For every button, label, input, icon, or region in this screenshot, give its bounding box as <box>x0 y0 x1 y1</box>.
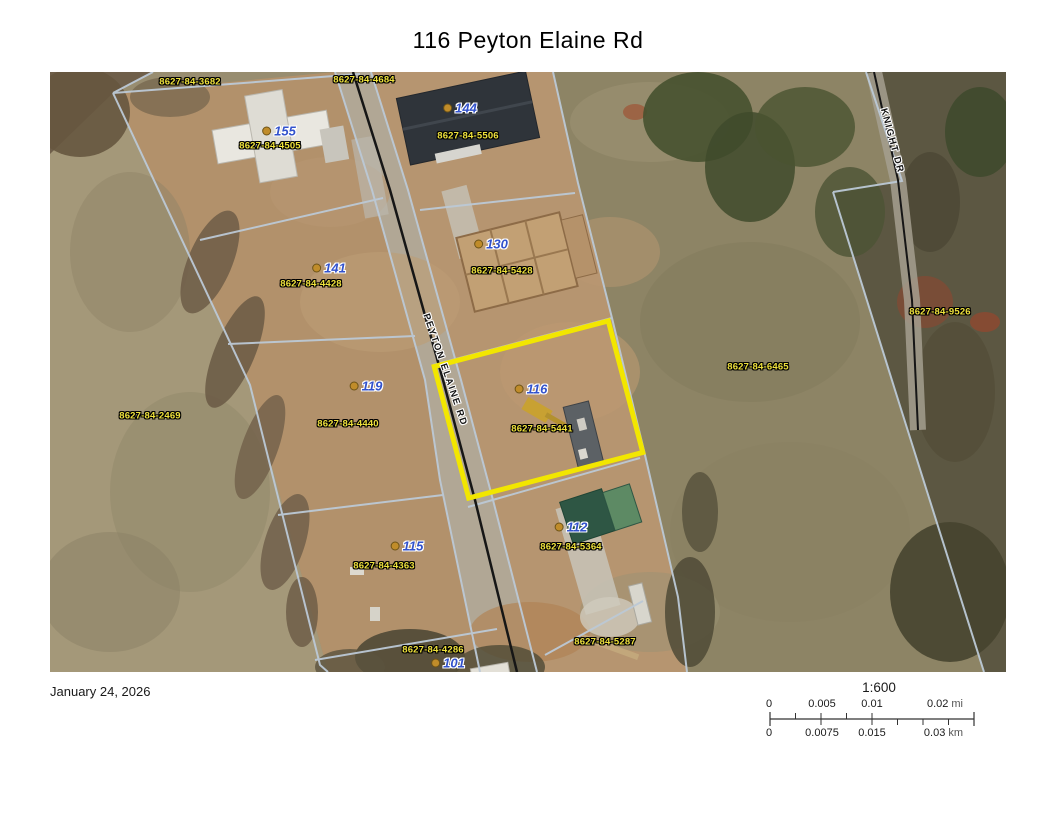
address-number: 119 <box>362 379 383 394</box>
parcel-label-8627-84-5364: 8627-84-5364 <box>540 542 602 553</box>
address-point-icon <box>312 264 321 273</box>
address-number: 112 <box>567 520 588 535</box>
scale-km-0: 0 <box>766 727 772 739</box>
parcel-label-8627-84-5287: 8627-84-5287 <box>574 637 636 648</box>
map-date: January 24, 2026 <box>50 684 150 699</box>
address-label-101: 101 <box>431 656 465 671</box>
parcel-label-8627-84-4363: 8627-84-4363 <box>353 561 415 572</box>
parcel-label-8627-84-5428: 8627-84-5428 <box>471 266 533 277</box>
parcel-label-8627-84-5441: 8627-84-5441 <box>511 424 573 435</box>
parcel-label-8627-84-6465: 8627-84-6465 <box>727 362 789 373</box>
page-title: 116 Peyton Elaine Rd <box>0 27 1056 54</box>
address-label-141: 141 <box>312 261 346 276</box>
scale-ruler <box>769 712 975 726</box>
address-label-116: 116 <box>515 382 548 397</box>
scale-mi-1: 0.005 <box>808 698 836 710</box>
map-report-page: { "title": "116 Peyton Elaine Rd", "foot… <box>0 0 1056 816</box>
address-number: 130 <box>486 237 508 252</box>
address-point-icon <box>474 240 483 249</box>
address-number: 144 <box>455 101 477 116</box>
parcel-label-8627-84-4684: 8627-84-4684 <box>333 75 395 86</box>
aerial-parcel-map[interactable]: 8627-84-36828627-84-46848627-84-45058627… <box>50 72 1006 672</box>
address-number: 115 <box>403 539 424 554</box>
address-point-icon <box>443 104 452 113</box>
scale-mi-0: 0 <box>766 698 772 710</box>
address-number: 101 <box>443 656 465 671</box>
scale-km-unit: km <box>948 727 963 739</box>
parcel-label-8627-84-4505: 8627-84-4505 <box>239 141 301 152</box>
scale-km-3: 0.03km <box>924 727 963 739</box>
address-point-icon <box>515 385 524 394</box>
scale-mi-3: 0.02mi <box>927 698 963 710</box>
address-number: 116 <box>527 382 548 397</box>
scale-km-1: 0.0075 <box>805 727 839 739</box>
address-label-112: 112 <box>555 520 588 535</box>
parcel-label-8627-84-5506: 8627-84-5506 <box>437 131 499 142</box>
address-point-icon <box>350 382 359 391</box>
parcel-label-8627-84-4428: 8627-84-4428 <box>280 279 342 290</box>
scale-bar: 1:600 0 0.005 0.01 0.02mi 0 0.0075 0.015… <box>740 680 1020 750</box>
address-point-icon <box>431 659 440 668</box>
address-label-115: 115 <box>391 539 424 554</box>
parcel-label-8627-84-2469: 8627-84-2469 <box>119 411 181 422</box>
address-label-119: 119 <box>350 379 383 394</box>
parcel-label-8627-84-4440: 8627-84-4440 <box>317 419 379 430</box>
scale-mi-2: 0.01 <box>861 698 882 710</box>
address-number: 141 <box>324 261 346 276</box>
parcel-label-8627-84-9526: 8627-84-9526 <box>909 307 971 318</box>
address-point-icon <box>262 127 271 136</box>
address-number: 155 <box>274 124 296 139</box>
address-label-155: 155 <box>262 124 296 139</box>
address-label-130: 130 <box>474 237 508 252</box>
scale-km-2: 0.015 <box>858 727 886 739</box>
address-point-icon <box>391 542 400 551</box>
address-point-icon <box>555 523 564 532</box>
address-label-144: 144 <box>443 101 477 116</box>
scale-mi-unit: mi <box>951 698 963 710</box>
parcel-label-8627-84-4286: 8627-84-4286 <box>402 645 464 656</box>
parcel-label-8627-84-3682: 8627-84-3682 <box>159 77 221 88</box>
scale-ratio: 1:600 <box>862 680 896 695</box>
